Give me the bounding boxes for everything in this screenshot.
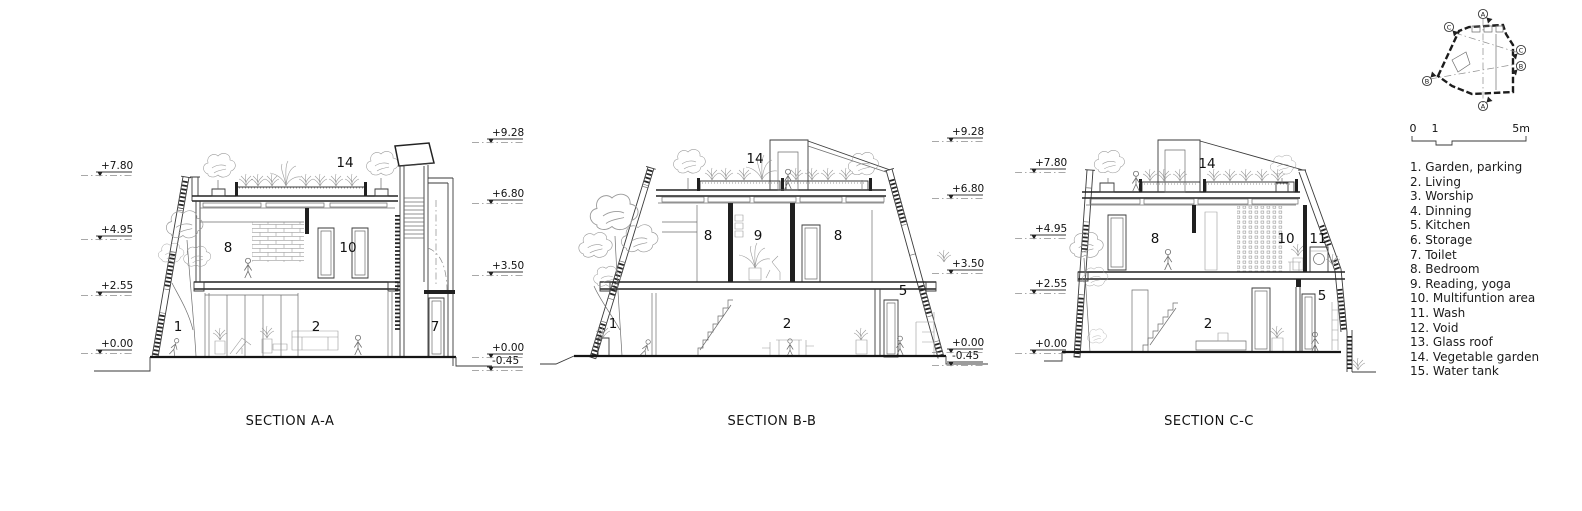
level-marker: +6.80 bbox=[472, 188, 525, 205]
room-label: 10 bbox=[1277, 231, 1294, 247]
planter-posts bbox=[1139, 179, 1298, 192]
right-outer-wall bbox=[448, 178, 453, 366]
room-label: 2 bbox=[1204, 316, 1213, 332]
room-label: 9 bbox=[754, 228, 763, 244]
plant-pot bbox=[1272, 338, 1283, 352]
door-inner-frame bbox=[1111, 218, 1123, 267]
level-value: +3.50 bbox=[952, 258, 984, 270]
tree-pots bbox=[212, 189, 388, 196]
section-aa-title: SECTION A-A bbox=[246, 414, 335, 429]
level-value: +3.50 bbox=[492, 260, 524, 272]
brick-wall bbox=[252, 222, 304, 262]
section-cc: +7.80 +4.95 +2.55 +0.00 14 8 10 11 2 5 S… bbox=[1015, 140, 1376, 429]
level-value: +9.28 bbox=[952, 126, 984, 138]
roof-parapet-left bbox=[190, 177, 200, 201]
marker-letter: B bbox=[1519, 62, 1523, 70]
room-label: 8 bbox=[1151, 231, 1160, 247]
legend-item: 11. Wash bbox=[1410, 306, 1582, 321]
section-cc-levels-left: +7.80 +4.95 +2.55 +0.00 bbox=[1015, 157, 1068, 355]
wall-window-slits bbox=[1306, 183, 1320, 221]
room-legend: 1. Garden, parking 2. Living 3. Worship … bbox=[1410, 160, 1582, 379]
section-bb-right-sloped-wall bbox=[884, 168, 946, 359]
washing-machine-door bbox=[1314, 254, 1325, 265]
section-aa-left-sloped-wall bbox=[150, 176, 191, 357]
marker-letter: B bbox=[1425, 77, 1429, 85]
pot-plant bbox=[213, 328, 227, 340]
key-plan: A A B B C C bbox=[1422, 9, 1525, 110]
right-parapet bbox=[428, 178, 453, 183]
garden-tree bbox=[158, 211, 210, 356]
pot-plant bbox=[260, 326, 274, 338]
room-label: 11 bbox=[1309, 231, 1326, 247]
roof-plants bbox=[705, 155, 853, 180]
room-label: 14 bbox=[746, 151, 763, 167]
level-value: +7.80 bbox=[101, 160, 133, 172]
section-cc-upper-floor bbox=[1078, 205, 1345, 287]
person-figure bbox=[169, 338, 180, 356]
plant-pot bbox=[856, 340, 867, 354]
wall-face-lines bbox=[884, 168, 946, 359]
level-value: +6.80 bbox=[952, 183, 984, 195]
person-figure bbox=[1164, 249, 1172, 270]
void-dashed-lines bbox=[428, 200, 447, 292]
level-marker: +9.28 bbox=[472, 127, 525, 144]
architectural-sections-sheet: +7.80 +4.95 +2.55 +0.00 +9.28 +6.80 +3.5… bbox=[0, 0, 1582, 511]
legend-item: 15. Water tank bbox=[1410, 364, 1582, 379]
room-label: 8 bbox=[704, 228, 713, 244]
person-figure bbox=[784, 169, 791, 189]
room7-wall-stub bbox=[424, 290, 455, 294]
section-cc-roof-garden bbox=[1082, 140, 1303, 204]
section-bb-roof-garden bbox=[656, 140, 890, 202]
section-bb-left-sloped-wall bbox=[588, 166, 656, 359]
wall-face-lines bbox=[588, 166, 656, 359]
room-label: 8 bbox=[224, 240, 233, 256]
ground-steps bbox=[540, 356, 988, 364]
level-marker: +9.28 bbox=[932, 126, 985, 143]
person-figure bbox=[787, 339, 793, 356]
roof-bulkhead bbox=[770, 140, 808, 190]
legend-item: 8. Bedroom bbox=[1410, 262, 1582, 277]
scale-bar: 0 1 5m bbox=[1410, 122, 1531, 145]
room-label: 1 bbox=[174, 319, 183, 335]
partition-stub bbox=[1192, 205, 1196, 233]
legend-item: 7. Toilet bbox=[1410, 248, 1582, 263]
chair bbox=[766, 256, 780, 280]
section-bb-room-labels: 14 8 9 8 1 2 5 bbox=[609, 151, 908, 332]
marker-letter: A bbox=[1481, 10, 1486, 18]
level-marker: +4.95 bbox=[1015, 223, 1068, 240]
level-value: +2.55 bbox=[101, 280, 133, 292]
roof-bulkhead bbox=[1158, 140, 1200, 192]
person-figure bbox=[640, 339, 652, 357]
room-label: 2 bbox=[783, 316, 792, 332]
section-aa: +7.80 +4.95 +2.55 +0.00 +9.28 +6.80 +3.5… bbox=[81, 127, 525, 429]
ground-steps bbox=[94, 357, 492, 371]
door-inner-frame bbox=[1255, 291, 1267, 349]
plant-pot bbox=[749, 268, 761, 280]
scale-label-five: 5m bbox=[1512, 122, 1530, 135]
room-label: 2 bbox=[312, 319, 321, 335]
level-value: -0.45 bbox=[492, 355, 519, 367]
legend-item: 3. Worship bbox=[1410, 189, 1582, 204]
legend-item: 4. Dinning bbox=[1410, 204, 1582, 219]
level-marker: +7.80 bbox=[81, 160, 134, 177]
legend-item: 2. Living bbox=[1410, 175, 1582, 190]
person-figure bbox=[896, 336, 903, 355]
kitchen-wall bbox=[1296, 287, 1300, 352]
level-value: +0.00 bbox=[101, 338, 133, 350]
room-label: 5 bbox=[1318, 288, 1327, 304]
legend-item: 13. Glass roof bbox=[1410, 335, 1582, 350]
perforated-brick-wall bbox=[1237, 206, 1283, 272]
legend-item: 14. Vegetable garden bbox=[1410, 350, 1582, 365]
scale-label-one: 1 bbox=[1432, 122, 1439, 135]
room-label: 7 bbox=[431, 319, 440, 335]
planter-posts bbox=[235, 182, 367, 196]
legend-item: 12. Void bbox=[1410, 321, 1582, 336]
roof-tree bbox=[674, 149, 706, 173]
tv bbox=[1218, 333, 1228, 341]
marker-letter: C bbox=[1447, 23, 1452, 31]
level-marker: +0.00 bbox=[81, 338, 134, 355]
upper-left-wall bbox=[196, 201, 200, 282]
person-figure bbox=[1132, 171, 1139, 191]
room-label: 5 bbox=[899, 283, 908, 299]
legend-item: 5. Kitchen bbox=[1410, 218, 1582, 233]
closet-wall bbox=[388, 292, 392, 357]
mid-slab bbox=[600, 282, 936, 289]
ground-steps bbox=[1044, 352, 1376, 372]
glass-roof-slope bbox=[808, 141, 890, 170]
roof-tree bbox=[367, 151, 399, 175]
person-figure bbox=[354, 335, 361, 355]
stairs bbox=[698, 300, 733, 356]
wall-window-slits bbox=[604, 187, 645, 322]
room5-door bbox=[1302, 294, 1315, 352]
section-bb: +9.28 +6.80 +3.50 +0.00 -0.45 14 8 9 8 1… bbox=[540, 126, 988, 429]
tree-trunks bbox=[688, 178, 862, 190]
level-marker: +7.80 bbox=[1015, 157, 1068, 174]
level-value: +0.00 bbox=[492, 342, 524, 354]
level-marker: +4.95 bbox=[81, 224, 134, 241]
room5-door-inner bbox=[887, 303, 895, 354]
level-marker: +6.80 bbox=[932, 183, 985, 200]
room5-door-inner bbox=[1305, 297, 1312, 349]
window-column bbox=[1205, 212, 1217, 270]
pot-plant bbox=[854, 328, 868, 340]
level-value: -0.45 bbox=[952, 350, 979, 362]
glass-wall bbox=[205, 293, 298, 357]
level-marker: +2.55 bbox=[81, 280, 134, 297]
key-plan-footprint bbox=[1438, 25, 1513, 94]
plant-pots bbox=[215, 339, 272, 354]
section-marker-a-bottom: A bbox=[1478, 97, 1492, 111]
ladder-shelf bbox=[1332, 302, 1338, 350]
key-plan-inner-walls bbox=[1452, 34, 1496, 90]
balcony-plant bbox=[937, 250, 951, 262]
roof-slab bbox=[192, 196, 398, 201]
roof-slab bbox=[1082, 192, 1300, 198]
wardrobe-line bbox=[662, 205, 697, 282]
level-marker: +3.50 bbox=[932, 258, 985, 275]
room-label: 8 bbox=[834, 228, 843, 244]
level-value: +2.55 bbox=[1035, 278, 1067, 290]
tv-console bbox=[1196, 341, 1246, 350]
section-marker-a-top: A bbox=[1478, 9, 1492, 23]
level-marker: -0.45 bbox=[472, 355, 525, 372]
partition-stub bbox=[305, 208, 309, 234]
legend-item: 6. Storage bbox=[1410, 233, 1582, 248]
roof-tree bbox=[204, 153, 236, 177]
stair-treads bbox=[404, 198, 424, 238]
legend-item: 10. Multifuntion area bbox=[1410, 291, 1582, 306]
section-marker-c-left: C bbox=[1444, 22, 1458, 36]
wall-stub bbox=[1296, 279, 1301, 287]
section-aa-stair-tower bbox=[395, 143, 455, 366]
ceiling-panels bbox=[203, 203, 387, 207]
tower-cap bbox=[395, 143, 434, 166]
roof-slab bbox=[656, 190, 886, 196]
ceiling-panels bbox=[662, 197, 884, 202]
scale-label-zero: 0 bbox=[1410, 122, 1417, 135]
level-value: +0.00 bbox=[952, 337, 984, 349]
ceiling-panels bbox=[1090, 199, 1298, 204]
wall-window-slits bbox=[904, 225, 936, 342]
room-label: 14 bbox=[336, 155, 353, 171]
section-aa-roof-garden bbox=[190, 151, 398, 207]
level-value: +4.95 bbox=[1035, 223, 1067, 235]
section-aa-levels-right: +9.28 +6.80 +3.50 +0.00 -0.45 bbox=[472, 127, 525, 372]
level-value: +0.00 bbox=[1035, 338, 1067, 350]
section-aa-levels-left: +7.80 +4.95 +2.55 +0.00 bbox=[81, 160, 134, 355]
person-figure bbox=[244, 258, 251, 278]
level-value: +4.95 bbox=[101, 224, 133, 236]
room-label: 10 bbox=[339, 240, 356, 256]
section-bb-title: SECTION B-B bbox=[728, 414, 817, 429]
level-value: +7.80 bbox=[1035, 157, 1067, 169]
table bbox=[776, 340, 802, 356]
room5-door bbox=[884, 300, 898, 357]
street-plant bbox=[1351, 358, 1365, 370]
plant-pot bbox=[1293, 258, 1303, 270]
legend-item: 9. Reading, yoga bbox=[1410, 277, 1582, 292]
room-label: 1 bbox=[609, 316, 618, 332]
scale-bar-line bbox=[1412, 136, 1526, 145]
mid-slab bbox=[1078, 272, 1345, 279]
sections-drawing-svg: +7.80 +4.95 +2.55 +0.00 +9.28 +6.80 +3.5… bbox=[0, 0, 1582, 511]
pot-plant bbox=[1270, 326, 1284, 338]
room-plant bbox=[739, 243, 770, 268]
opening-frame bbox=[1132, 290, 1148, 352]
roof-tree bbox=[1094, 150, 1124, 172]
kitchen-wall bbox=[875, 289, 880, 357]
glass-wall bbox=[652, 293, 656, 356]
lounge-chair bbox=[230, 338, 251, 354]
marker-letter: C bbox=[1519, 46, 1524, 54]
level-value: +9.28 bbox=[492, 127, 524, 139]
legend-item: 1. Garden, parking bbox=[1410, 160, 1582, 175]
level-marker: +0.00 bbox=[1015, 338, 1068, 355]
section-bb-ground-floor bbox=[540, 194, 988, 364]
room-label: 14 bbox=[1198, 156, 1215, 172]
section-cc-title: SECTION C-C bbox=[1164, 414, 1254, 429]
door-inner-frame bbox=[805, 228, 817, 279]
mid-slab bbox=[194, 282, 398, 289]
level-value: +6.80 bbox=[492, 188, 524, 200]
level-marker: +2.55 bbox=[1015, 278, 1068, 295]
shelves bbox=[735, 215, 743, 237]
level-marker: +3.50 bbox=[472, 260, 525, 277]
wall-room10-11 bbox=[1303, 205, 1307, 272]
coffee-table bbox=[273, 344, 287, 350]
marker-letter: A bbox=[1481, 102, 1486, 110]
roof-tree bbox=[848, 152, 878, 174]
section-bb-levels-right: +9.28 +6.80 +3.50 +0.00 -0.45 bbox=[932, 126, 985, 367]
stool bbox=[1288, 262, 1301, 271]
